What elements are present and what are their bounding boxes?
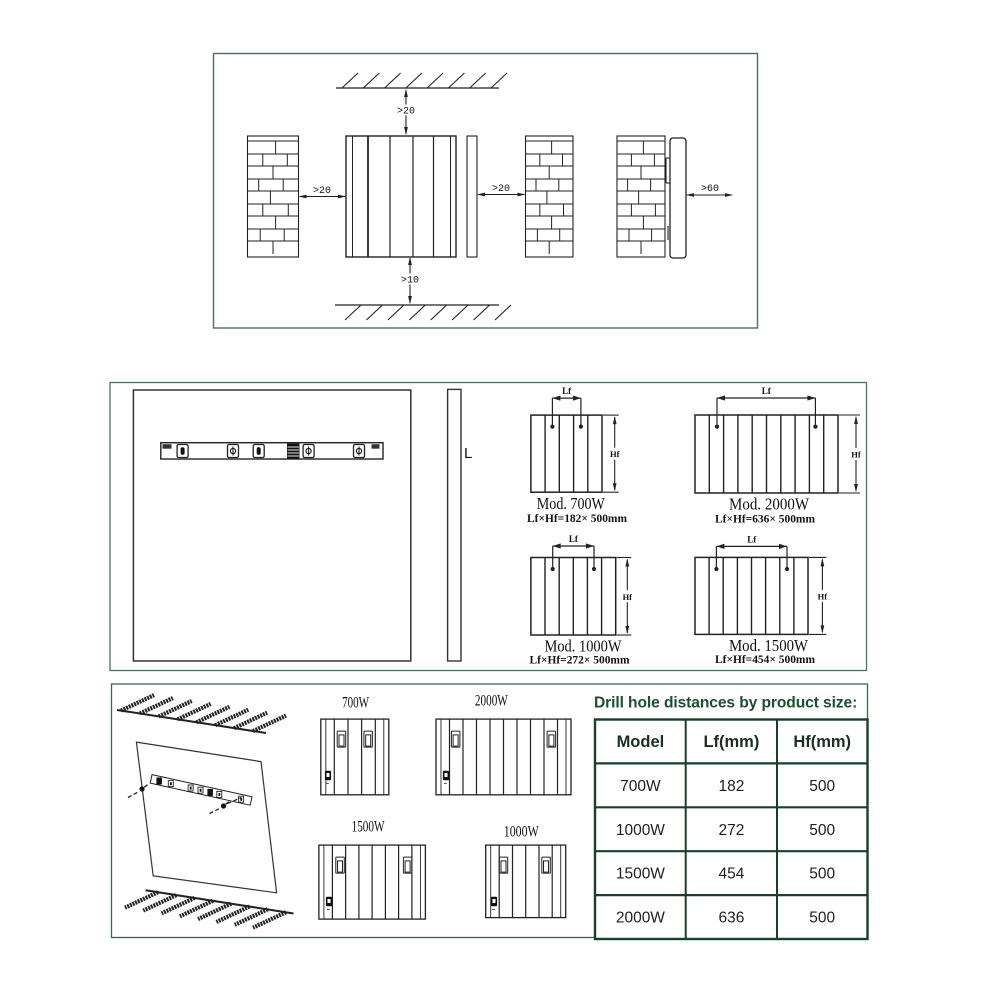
svg-text:Hf(mm): Hf(mm) (793, 733, 851, 751)
svg-text:>60: >60 (701, 184, 719, 195)
svg-text:500: 500 (809, 910, 835, 927)
svg-text:2000W: 2000W (475, 693, 508, 710)
svg-text:>20: >20 (492, 184, 510, 195)
svg-text:1000W: 1000W (616, 822, 665, 839)
svg-text:636: 636 (718, 910, 744, 927)
svg-text:Drill hole distances by produc: Drill hole distances by product size: (594, 695, 857, 712)
svg-text:Hf: Hf (818, 591, 828, 601)
svg-text:Lf: Lf (569, 534, 579, 544)
svg-text:182: 182 (718, 778, 744, 795)
svg-text:Hf: Hf (623, 592, 633, 602)
svg-text:Model: Model (617, 733, 665, 751)
svg-text:Lf: Lf (762, 386, 772, 396)
svg-text:Mod. 1500W: Mod. 1500W (729, 636, 808, 655)
svg-text:Lf: Lf (747, 534, 757, 544)
svg-text:Lf×Hf=272× 500mm: Lf×Hf=272× 500mm (530, 655, 630, 667)
svg-text:2000W: 2000W (616, 910, 665, 927)
svg-text:Lf(mm): Lf(mm) (703, 733, 759, 751)
svg-text:454: 454 (718, 866, 744, 883)
svg-text:Mod. 1000W: Mod. 1000W (545, 637, 622, 656)
svg-text:1000W: 1000W (504, 824, 539, 841)
svg-text:1500W: 1500W (352, 819, 385, 836)
svg-text:Lf×Hf=182× 500mm: Lf×Hf=182× 500mm (527, 513, 627, 525)
svg-text:L: L (464, 445, 472, 462)
svg-text:500: 500 (809, 866, 835, 883)
svg-text:Hf: Hf (610, 449, 620, 459)
svg-text:Lf×Hf=454× 500mm: Lf×Hf=454× 500mm (715, 654, 815, 666)
svg-text:>20: >20 (313, 186, 331, 197)
svg-text:500: 500 (809, 778, 835, 795)
svg-text:Lf: Lf (562, 386, 572, 396)
svg-text:700W: 700W (620, 778, 661, 795)
svg-text:>20: >20 (397, 107, 415, 118)
svg-text:>10: >10 (401, 276, 419, 287)
svg-text:Lf×Hf=636× 500mm: Lf×Hf=636× 500mm (715, 514, 815, 526)
svg-text:1500W: 1500W (616, 866, 665, 883)
svg-text:700W: 700W (342, 695, 369, 712)
svg-text:500: 500 (809, 822, 835, 839)
svg-text:272: 272 (718, 822, 744, 839)
svg-text:Hf: Hf (851, 450, 861, 460)
svg-text:Mod. 700W: Mod. 700W (537, 494, 605, 513)
svg-text:Mod. 2000W: Mod. 2000W (729, 495, 809, 514)
